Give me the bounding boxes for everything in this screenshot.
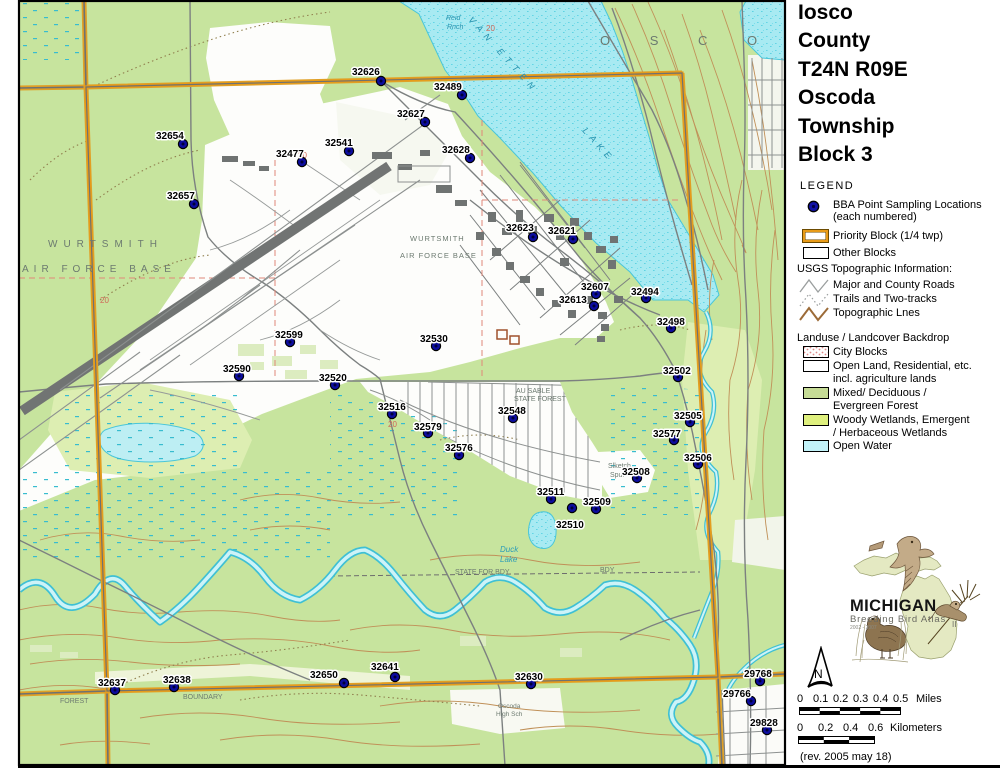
- svg-text:II: II: [952, 620, 956, 629]
- svg-text:32641: 32641: [371, 662, 399, 673]
- svg-text:BDY: BDY: [600, 567, 615, 574]
- svg-text:32577: 32577: [653, 429, 681, 440]
- svg-text:Duck: Duck: [500, 545, 519, 554]
- svg-text:32654: 32654: [156, 131, 184, 142]
- svg-text:32489: 32489: [434, 82, 462, 93]
- svg-text:32494: 32494: [631, 287, 659, 298]
- svg-text:AIR FORCE BASE: AIR FORCE BASE: [22, 264, 176, 275]
- svg-text:32590: 32590: [223, 364, 251, 375]
- svg-text:Reid: Reid: [446, 15, 462, 22]
- svg-text:AU SABLE: AU SABLE: [516, 388, 551, 395]
- svg-text:20: 20: [100, 296, 109, 305]
- svg-text:32607: 32607: [581, 282, 609, 293]
- svg-text:WURTSMITH: WURTSMITH: [48, 239, 163, 250]
- svg-text:32621: 32621: [548, 226, 576, 237]
- svg-text:32541: 32541: [325, 138, 353, 149]
- svg-text:FOREST: FOREST: [60, 698, 89, 705]
- svg-text:BOUNDARY: BOUNDARY: [183, 694, 223, 701]
- svg-text:20: 20: [486, 24, 495, 33]
- svg-text:Breeding Bird Atlas: Breeding Bird Atlas: [850, 614, 946, 625]
- svg-text:32657: 32657: [167, 191, 195, 202]
- svg-text:WURTSMITH: WURTSMITH: [410, 234, 465, 243]
- svg-text:Oscoda: Oscoda: [498, 703, 521, 710]
- svg-text:32576: 32576: [445, 443, 473, 454]
- svg-text:32509: 32509: [583, 497, 611, 508]
- svg-text:AIR FORCE BASE: AIR FORCE BASE: [400, 251, 477, 260]
- svg-text:32505: 32505: [674, 411, 702, 422]
- svg-text:32548: 32548: [498, 406, 526, 417]
- svg-text:29768: 29768: [744, 669, 772, 680]
- svg-text:32579: 32579: [414, 422, 442, 433]
- svg-text:Rnch: Rnch: [447, 24, 463, 31]
- svg-text:2002 - 2007: 2002 - 2007: [850, 625, 877, 631]
- svg-text:32637: 32637: [98, 678, 126, 689]
- svg-text:32477: 32477: [276, 149, 304, 160]
- svg-text:29828: 29828: [750, 718, 778, 729]
- svg-text:MICHIGAN: MICHIGAN: [850, 597, 937, 615]
- svg-text:32638: 32638: [163, 675, 191, 686]
- svg-text:32516: 32516: [378, 402, 406, 413]
- svg-text:20: 20: [388, 420, 397, 429]
- svg-text:32650: 32650: [310, 670, 338, 681]
- svg-text:N: N: [814, 667, 823, 681]
- svg-text:32508: 32508: [622, 467, 650, 478]
- svg-text:32628: 32628: [442, 145, 470, 156]
- svg-text:O S C O D A: O S C O D A: [600, 33, 790, 48]
- svg-text:32630: 32630: [515, 672, 543, 683]
- svg-text:29766: 29766: [723, 689, 751, 700]
- svg-text:Lake: Lake: [500, 555, 518, 564]
- svg-text:32613: 32613: [559, 295, 587, 306]
- svg-text:32498: 32498: [657, 317, 685, 328]
- svg-text:32530: 32530: [420, 334, 448, 345]
- svg-text:32599: 32599: [275, 330, 303, 341]
- svg-text:32520: 32520: [319, 373, 347, 384]
- svg-text:32623: 32623: [506, 223, 534, 234]
- svg-text:32502: 32502: [663, 366, 691, 377]
- svg-text:STATE FOR BDY: STATE FOR BDY: [455, 569, 510, 576]
- svg-text:STATE FOREST: STATE FOREST: [514, 396, 567, 403]
- svg-text:32511: 32511: [537, 487, 565, 498]
- svg-text:32627: 32627: [397, 109, 425, 120]
- svg-text:High Sch: High Sch: [496, 711, 523, 718]
- svg-text:32626: 32626: [352, 67, 380, 78]
- svg-text:32510: 32510: [556, 520, 584, 531]
- svg-text:32506: 32506: [684, 453, 712, 464]
